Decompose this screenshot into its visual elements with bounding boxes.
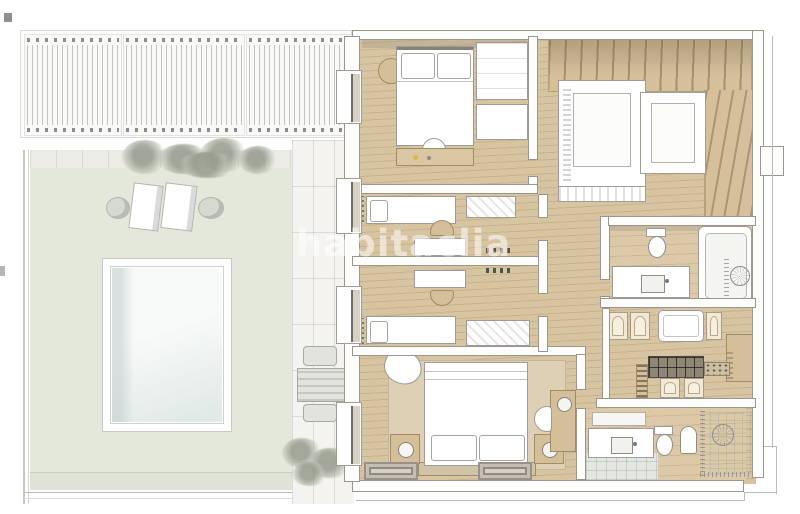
pergola-beam-ends: [126, 128, 242, 132]
wall-bedroom-bottom: [352, 184, 538, 194]
sideboard: [466, 320, 530, 346]
terrace-wall-line: [23, 150, 25, 504]
pergola-beam-ends: [126, 38, 242, 42]
wardrobe-door: [706, 312, 722, 340]
corner-marker: [4, 13, 12, 22]
wall-closet-left: [602, 308, 610, 400]
shower-head: [712, 424, 734, 446]
toilet-bowl: [656, 434, 673, 456]
single-bed: [366, 316, 456, 344]
cabinet: [476, 104, 528, 140]
stair-void-box: [640, 92, 706, 174]
door-arch: [710, 316, 718, 336]
bidet: [680, 426, 697, 454]
sun-lounger: [128, 182, 163, 231]
shrub: [238, 146, 278, 174]
wall-bedroom-right: [528, 36, 538, 160]
outline-step: [744, 492, 745, 500]
wall-master-right: [576, 408, 586, 480]
table: [414, 270, 466, 288]
edge-marker: [0, 266, 5, 276]
wardrobe-door: [630, 312, 650, 340]
pillow: [370, 321, 388, 343]
pergola-slats: [126, 45, 242, 125]
closet-island-grid: [648, 356, 704, 378]
window-glass: [351, 290, 360, 342]
wall-shelves: [476, 42, 528, 100]
wall-master-right: [576, 354, 586, 390]
mirror: [592, 412, 646, 426]
duvet-fold: [425, 379, 527, 380]
door-arch: [664, 382, 676, 394]
wall-twin-right: [538, 194, 548, 218]
wall-right: [752, 30, 764, 478]
outline-step: [744, 492, 777, 493]
window-glass: [351, 74, 360, 122]
window: [336, 70, 362, 124]
pergola-panel: [123, 34, 245, 136]
stair-void-box: [558, 80, 646, 188]
sink: [641, 275, 665, 293]
duvet-fold: [425, 371, 527, 372]
watermark: habitaclia: [296, 222, 511, 265]
hall-cabinet: [550, 390, 576, 452]
pillow: [370, 200, 388, 222]
pergola-beam-ends: [249, 38, 349, 42]
pergola-slats: [27, 45, 119, 125]
door-arch: [688, 382, 700, 394]
drawer-stack: [636, 364, 648, 398]
master-bed: [424, 362, 528, 466]
shrub: [178, 152, 238, 178]
side-table: [106, 197, 130, 219]
floor-plan-render: habitaclia: [0, 0, 800, 514]
knob: [557, 397, 572, 412]
wall-twin-right: [538, 240, 548, 294]
wall-top: [352, 30, 764, 40]
outline-step: [772, 36, 773, 448]
shrub: [292, 462, 328, 486]
wall-bottom: [352, 480, 744, 492]
window: [336, 402, 362, 466]
stair-box-glazing: [563, 89, 571, 181]
bedside-rug: [478, 462, 532, 480]
shower-glass: [700, 472, 756, 477]
pillow: [437, 53, 471, 79]
lamp: [398, 442, 414, 458]
shoe-rack: [704, 362, 730, 376]
pergola: [20, 30, 352, 138]
terrace-wall-line: [28, 150, 29, 504]
door-arch: [612, 316, 624, 336]
wall-twin-right: [538, 316, 548, 352]
patio-chair: [303, 404, 337, 422]
window-glass: [351, 406, 360, 464]
mirror-panel: [658, 310, 704, 342]
wall-masterbath-top: [596, 398, 756, 408]
desk: [396, 148, 474, 166]
hamper: [660, 378, 680, 398]
bidet-bowl: [648, 236, 666, 258]
stair-box-opening: [651, 103, 695, 163]
pergola-beam-ends: [27, 38, 119, 42]
door-arch: [634, 316, 646, 336]
patio-chair: [303, 346, 337, 366]
deck-bottom-band: [30, 472, 292, 490]
vanity-counter: [588, 428, 654, 458]
sideboard: [466, 196, 516, 218]
bedside-rug: [364, 462, 418, 480]
desk-item: [413, 155, 418, 160]
shower-glass: [700, 410, 705, 476]
pergola-beam-ends: [249, 128, 349, 132]
outline-step: [776, 446, 777, 494]
headboard: [397, 47, 473, 50]
floor-vent: [486, 268, 512, 273]
pergola-slats: [249, 45, 349, 125]
vanity-counter: [612, 266, 690, 298]
wall-bath-top: [608, 216, 756, 226]
pillow: [479, 435, 525, 461]
desk-item: [427, 156, 431, 160]
pergola-panel: [24, 34, 122, 136]
double-bed: [396, 46, 474, 146]
pool-water: [112, 268, 222, 422]
sink: [611, 437, 633, 454]
faucet: [633, 442, 637, 446]
duvet-fold: [397, 81, 473, 82]
stair-box-opening: [573, 93, 631, 167]
pillow: [401, 53, 435, 79]
shower-head: [730, 266, 750, 286]
stair-ledge: [558, 186, 646, 202]
stair-winders: [704, 90, 752, 236]
sun-lounger: [160, 182, 197, 232]
swimming-pool: [102, 258, 232, 432]
window: [336, 286, 362, 344]
nightstand: [390, 434, 420, 464]
side-table: [198, 197, 224, 219]
outline-step: [356, 500, 745, 501]
mirror-inner: [663, 315, 699, 337]
pillow: [431, 435, 477, 461]
pergola-beam-ends: [27, 128, 119, 132]
faucet: [665, 279, 669, 283]
wardrobe-door: [608, 312, 628, 340]
hamper: [684, 378, 704, 398]
wall-twin-bottom: [352, 346, 586, 356]
wall-bath-bottom: [600, 298, 756, 308]
